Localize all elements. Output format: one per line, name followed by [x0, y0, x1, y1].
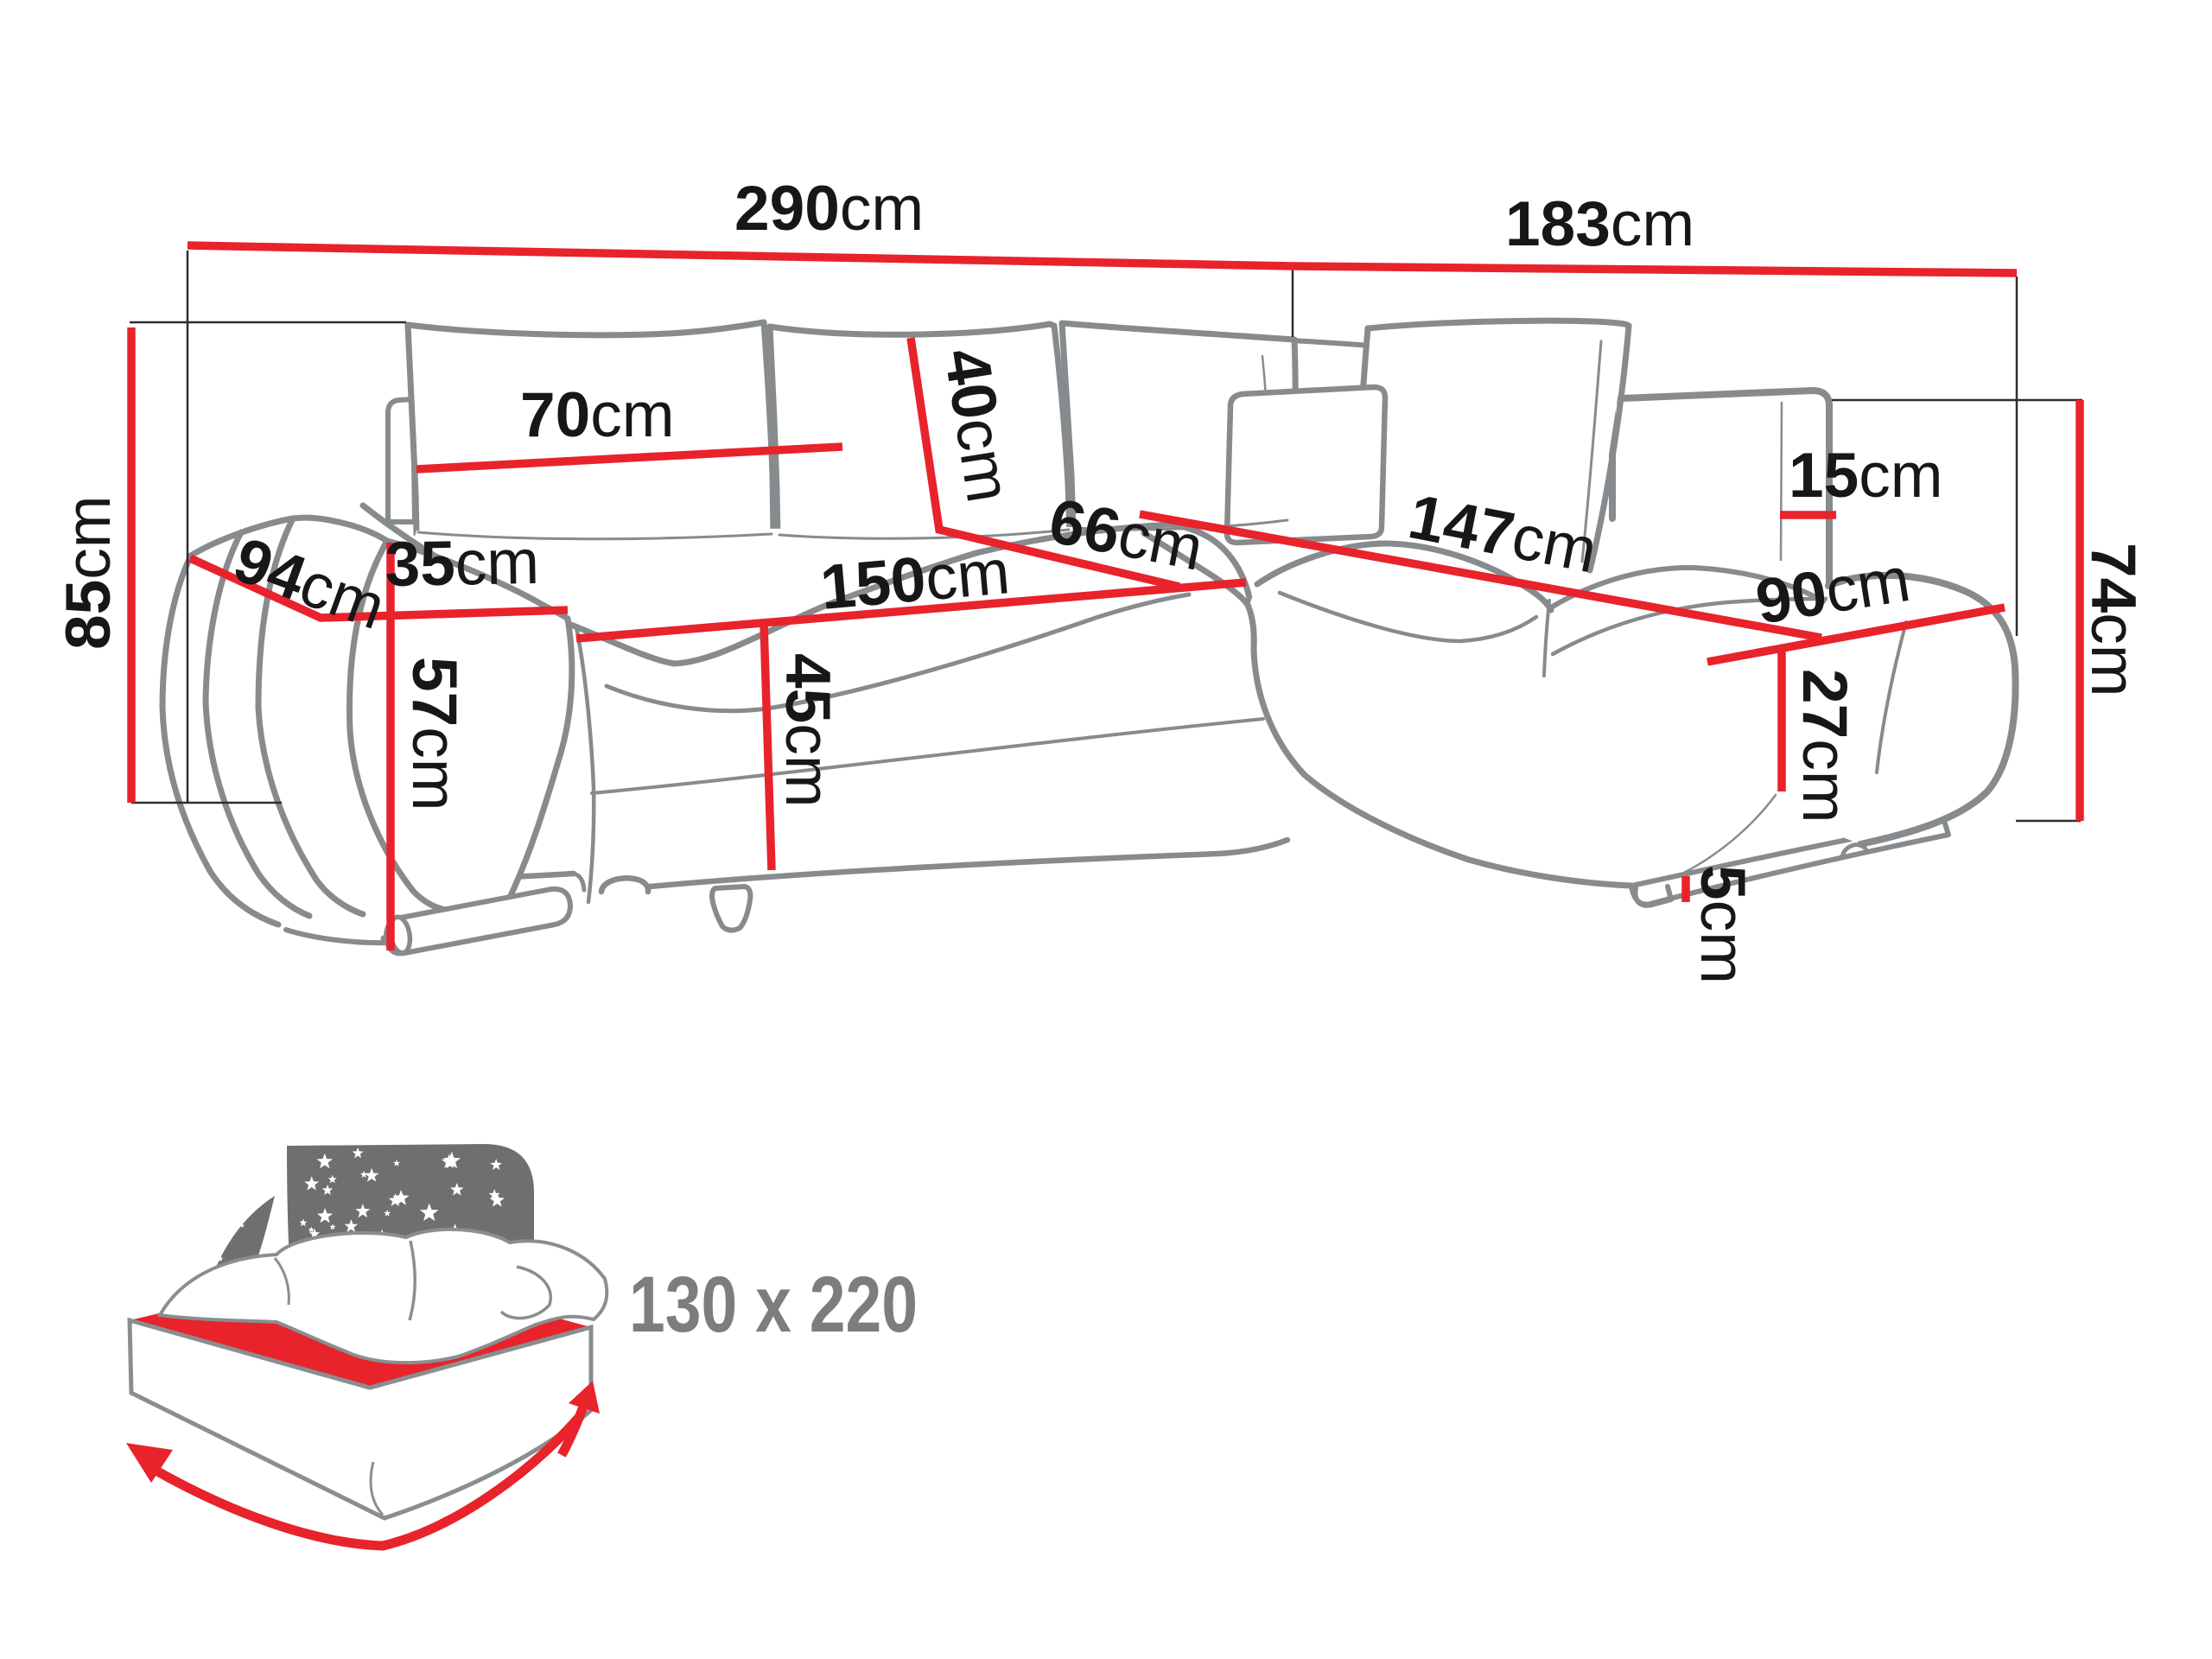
svg-text:70cm: 70cm [520, 380, 675, 450]
svg-text:45cm: 45cm [772, 653, 842, 808]
svg-text:57cm: 57cm [399, 657, 469, 811]
svg-text:290cm: 290cm [734, 174, 924, 244]
svg-text:15cm: 15cm [1789, 441, 1943, 511]
svg-text:183cm: 183cm [1505, 189, 1694, 259]
svg-text:130 x 220: 130 x 220 [629, 1261, 918, 1349]
svg-text:74cm: 74cm [2078, 543, 2148, 697]
svg-text:35cm: 35cm [385, 527, 540, 600]
svg-text:85cm: 85cm [54, 495, 124, 650]
svg-text:27cm: 27cm [1789, 669, 1859, 823]
svg-text:5cm: 5cm [1688, 865, 1758, 984]
